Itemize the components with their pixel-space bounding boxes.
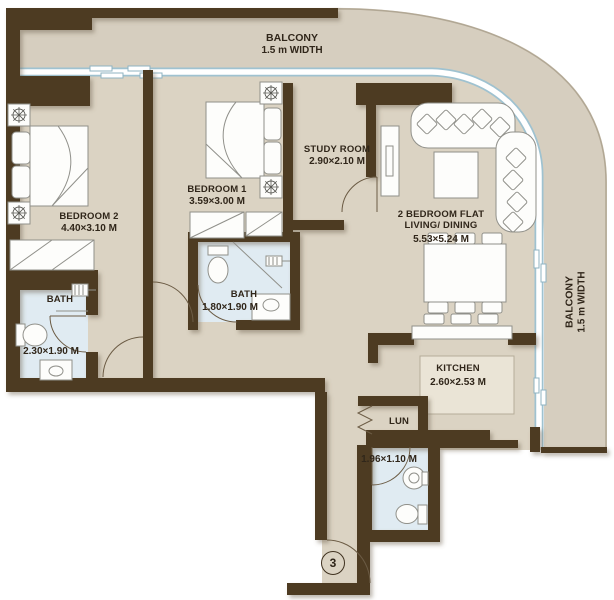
balcony-width: 1.5 m WIDTH bbox=[212, 45, 372, 56]
entry-door-number: 3 bbox=[321, 551, 345, 575]
bedroom1-label: BEDROOM 1 3.59×3.00 M bbox=[153, 184, 281, 207]
balcony-right-label: BALCONY 1.5 m WIDTH bbox=[565, 271, 588, 332]
balcony-end-wall bbox=[541, 447, 607, 453]
toilet-icon bbox=[208, 246, 228, 255]
balcony-top-label: BALCONY 1.5 m WIDTH bbox=[212, 33, 372, 56]
bedside-lamp-icon bbox=[8, 104, 30, 126]
bedroom2-bed bbox=[12, 126, 88, 206]
coffee-table bbox=[434, 152, 478, 198]
bath-shared-label: BATH bbox=[213, 289, 275, 300]
kitchen-label: KITCHEN 2.60×2.53 M bbox=[402, 363, 514, 388]
toilet-icon bbox=[396, 505, 418, 524]
floor-plan: BALCONY 1.5 m WIDTH BALCONY 1.5 m WIDTH … bbox=[0, 0, 614, 600]
bedroom1-wardrobe bbox=[190, 212, 282, 238]
study-label: STUDY ROOM 2.90×2.10 M bbox=[281, 144, 393, 167]
laundry-label: LUN bbox=[374, 416, 424, 427]
laundry-dims: 1.96×1.10 M bbox=[343, 453, 435, 465]
living-dining-label: 2 BEDROOM FLAT LIVING/ DINING 5.53×5.24 … bbox=[379, 209, 503, 245]
bedside-lamp-icon bbox=[260, 82, 282, 104]
bath-shared-dims: 1.80×1.90 M bbox=[184, 301, 276, 313]
breakfast-bar bbox=[412, 314, 512, 339]
balcony-name: BALCONY bbox=[212, 33, 372, 44]
bedroom2-wardrobe bbox=[10, 240, 94, 270]
balcony-width: 1.5 m WIDTH bbox=[577, 271, 588, 332]
bedroom2-label: BEDROOM 2 4.40×3.10 M bbox=[24, 211, 154, 234]
bedroom1-bed bbox=[206, 102, 281, 178]
balcony-name: BALCONY bbox=[565, 271, 576, 332]
floor-plan-drawing bbox=[0, 0, 614, 600]
bath-master-label: BATH bbox=[30, 294, 90, 305]
entry-wall bbox=[287, 583, 370, 595]
dining-set bbox=[424, 233, 506, 313]
bath-master-dims: 2.30×1.90 M bbox=[8, 345, 94, 357]
